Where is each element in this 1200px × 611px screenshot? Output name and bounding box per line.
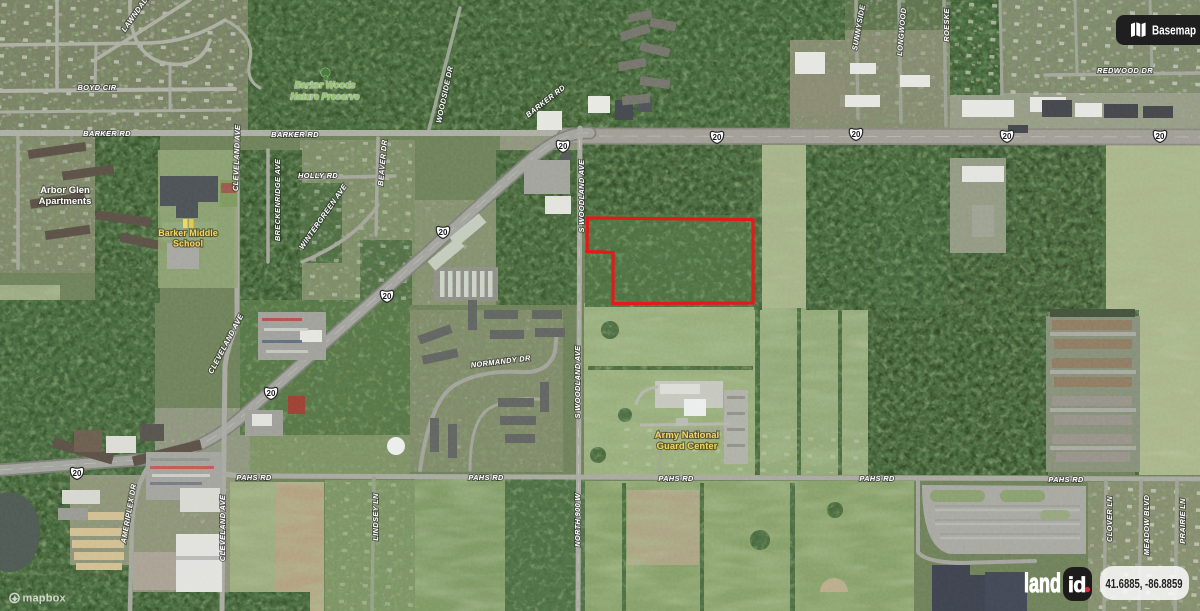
svg-text:S WOODLAND AVE: S WOODLAND AVE (573, 345, 582, 419)
svg-text:CLOVER LN: CLOVER LN (1105, 496, 1114, 542)
svg-text:Arbor Glen: Arbor Glen (40, 185, 90, 196)
svg-text:MEADOW BLVD: MEADOW BLVD (1142, 495, 1151, 556)
svg-text:BRECKENRIDGE AVE: BRECKENRIDGE AVE (273, 158, 282, 241)
svg-text:Barker Woods: Barker Woods (295, 80, 356, 90)
svg-text:PRAIRIE LN: PRAIRIE LN (1178, 498, 1187, 544)
svg-text:BARKER RD: BARKER RD (271, 130, 319, 139)
svg-text:PAHS RD: PAHS RD (1048, 475, 1084, 484)
svg-text:School: School (173, 239, 203, 249)
svg-text:ROESKE: ROESKE (942, 8, 951, 42)
svg-text:HOLLY RD: HOLLY RD (298, 171, 338, 180)
svg-text:41.6885, -86.8859: 41.6885, -86.8859 (1106, 576, 1183, 591)
svg-text:CLEVELAND AVE: CLEVELAND AVE (218, 494, 227, 561)
svg-text:NORTH 900 W: NORTH 900 W (573, 493, 582, 547)
svg-text:BARKER RD: BARKER RD (83, 129, 131, 138)
svg-text:Basemap: Basemap (1152, 24, 1196, 38)
svg-text:land: land (1024, 568, 1061, 598)
svg-text:Barker Middle: Barker Middle (158, 228, 218, 238)
svg-text:REDWOOD DR: REDWOOD DR (1097, 66, 1153, 75)
svg-text:PAHS RD: PAHS RD (859, 474, 895, 483)
svg-text:PAHS RD: PAHS RD (468, 473, 504, 482)
svg-text:PAHS RD: PAHS RD (658, 474, 694, 483)
svg-text:BOYD CIR: BOYD CIR (77, 83, 116, 92)
svg-text:Guard Center: Guard Center (657, 441, 718, 452)
svg-text:Army National: Army National (655, 430, 719, 441)
svg-text:Nature Preserve: Nature Preserve (290, 92, 359, 102)
svg-text:id: id (1068, 574, 1086, 597)
svg-text:Apartments: Apartments (39, 196, 92, 207)
svg-text:PAHS RD: PAHS RD (236, 473, 272, 482)
svg-text:mapbox: mapbox (23, 593, 67, 605)
svg-text:S WOODLAND AVE: S WOODLAND AVE (577, 159, 586, 233)
svg-text:LINDSEY LN: LINDSEY LN (371, 493, 380, 541)
